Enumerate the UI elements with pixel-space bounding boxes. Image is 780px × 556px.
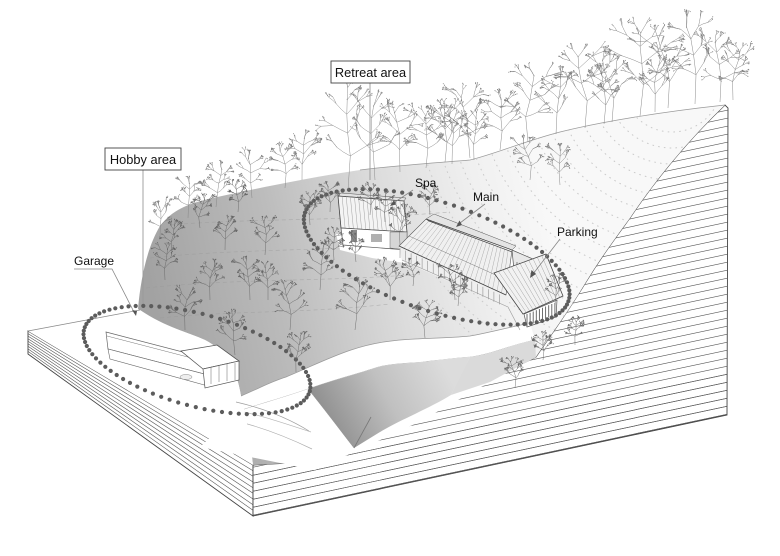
svg-text:Parking: Parking [557, 225, 598, 239]
svg-text:Main: Main [473, 190, 499, 204]
svg-text:Spa: Spa [415, 176, 437, 190]
svg-text:Hobby area: Hobby area [110, 152, 177, 167]
svg-text:Garage: Garage [74, 254, 114, 268]
svg-text:Retreat area: Retreat area [335, 65, 407, 80]
